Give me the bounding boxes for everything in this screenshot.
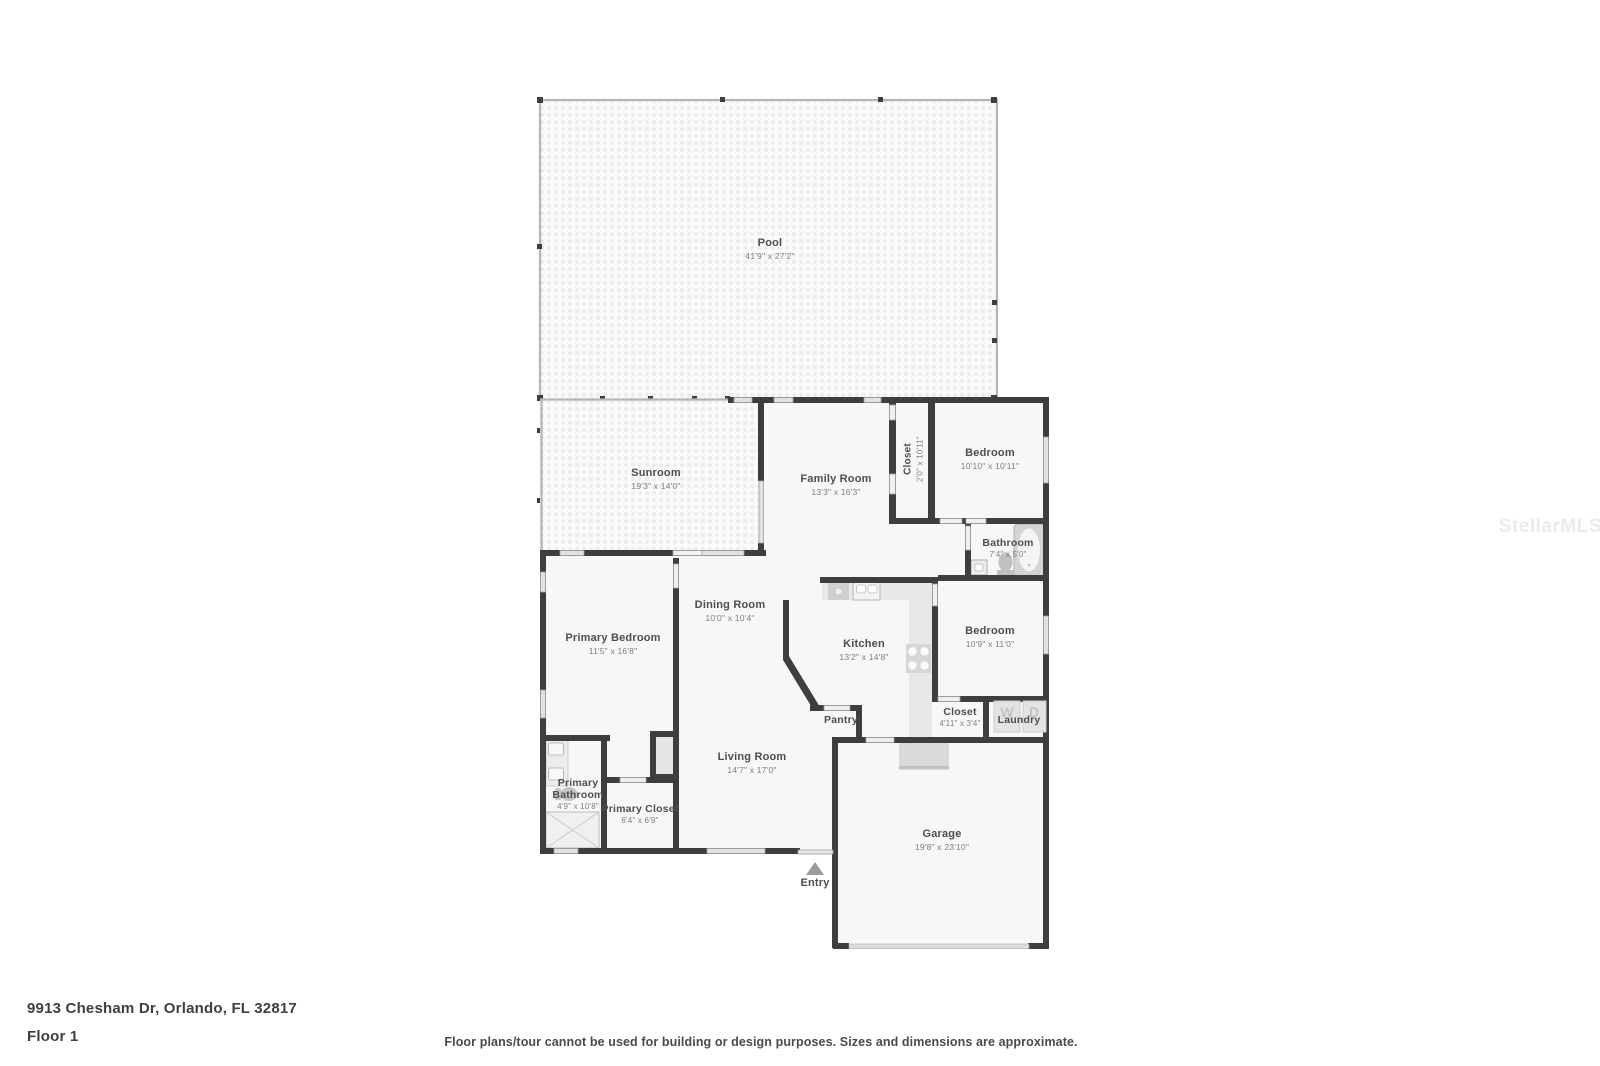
stove-icon bbox=[906, 644, 931, 673]
shower-icon bbox=[546, 812, 599, 848]
entry-arrow-icon bbox=[806, 862, 824, 875]
bathroom-sink-icon bbox=[971, 560, 987, 575]
property-address: 9913 Chesham Dr, Orlando, FL 32817 bbox=[27, 1000, 297, 1017]
kitchen-sink-icon bbox=[853, 581, 880, 600]
linen-nook bbox=[654, 737, 674, 775]
floorplan-drawing bbox=[0, 0, 1600, 1066]
washer-letter: W bbox=[1000, 704, 1013, 720]
stellar-mls-watermark: StellarMLS bbox=[1499, 516, 1600, 538]
dryer-letter: D bbox=[1029, 704, 1039, 720]
sunroom-area bbox=[540, 400, 764, 554]
bathtub-icon bbox=[1014, 524, 1044, 577]
floorplan-page: Pool 41'9" x 27'2" Sunroom 19'3" x 14'0"… bbox=[0, 0, 1600, 1066]
floor-label: Floor 1 bbox=[27, 1028, 78, 1045]
disclaimer-text: Floor plans/tour cannot be used for buil… bbox=[444, 1035, 1077, 1049]
primary-toilet-icon bbox=[555, 787, 578, 801]
dishwasher-icon bbox=[828, 583, 849, 600]
vanity-sinks-icon bbox=[546, 740, 568, 786]
garage-utility-block bbox=[899, 742, 949, 770]
